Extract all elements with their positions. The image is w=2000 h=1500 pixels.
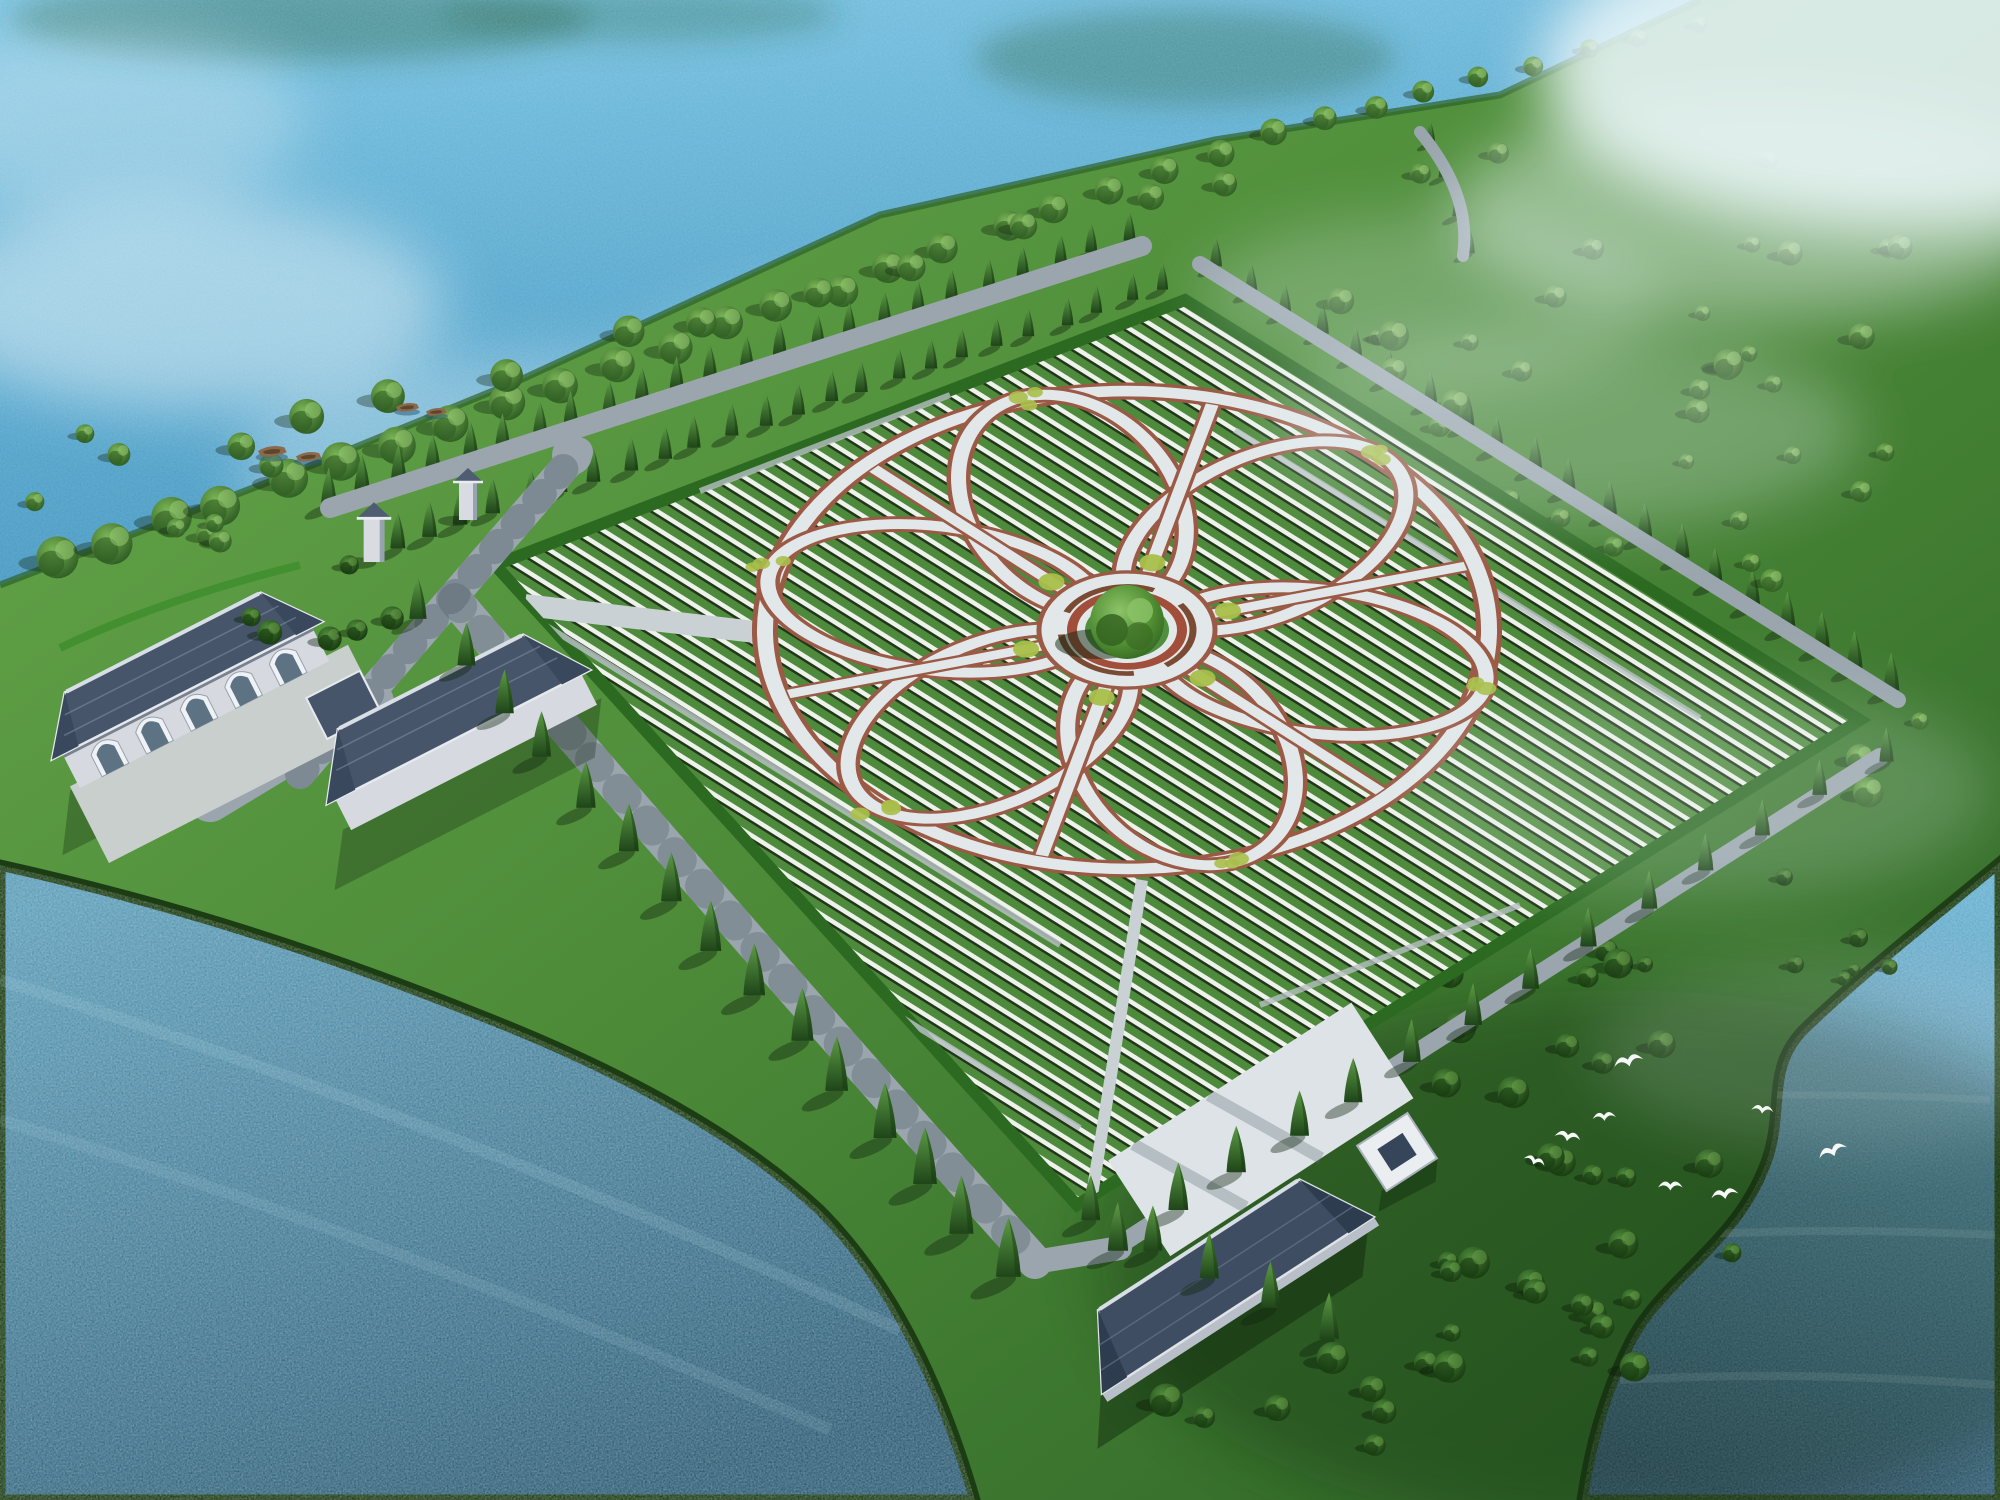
aerial-rendering (0, 0, 2000, 1500)
scene-canvas (0, 0, 2000, 1500)
